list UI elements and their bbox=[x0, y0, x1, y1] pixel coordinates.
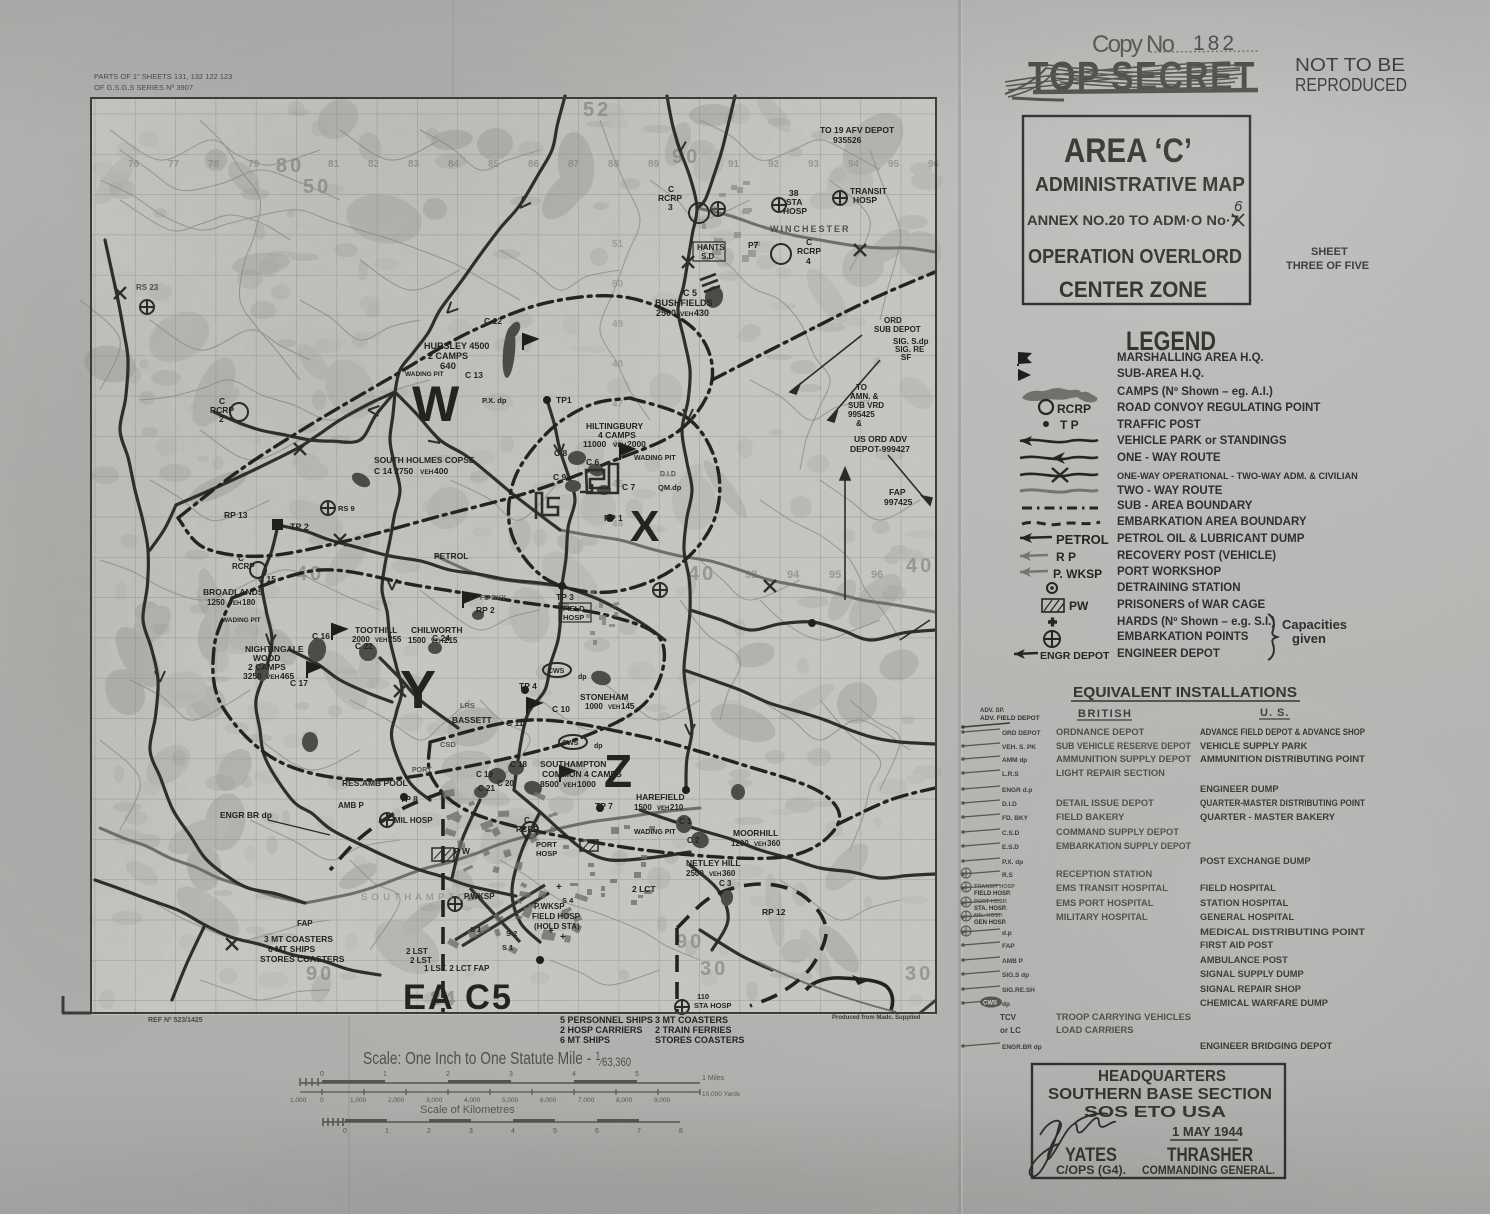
svg-text:10,000 Yards: 10,000 Yards bbox=[702, 1091, 741, 1098]
svg-text:VEH: VEH bbox=[754, 842, 766, 848]
svg-text:ENGR BR dp: ENGR BR dp bbox=[220, 810, 272, 820]
svg-text:30: 30 bbox=[905, 963, 933, 985]
svg-text:LRS: LRS bbox=[460, 701, 475, 710]
svg-text:VEH: VEH bbox=[563, 782, 577, 789]
svg-text:ROAD CONVOY REGULATING POINT: ROAD CONVOY REGULATING POINT bbox=[1117, 402, 1320, 414]
svg-text:STORES COASTERS: STORES COASTERS bbox=[655, 1035, 744, 1045]
svg-text:1500: 1500 bbox=[634, 803, 652, 812]
svg-text:4: 4 bbox=[806, 256, 811, 266]
svg-text:SOUTHAMPTON: SOUTHAMPTON bbox=[361, 892, 481, 903]
svg-text:995425: 995425 bbox=[848, 410, 875, 419]
svg-text:RECOVERY POST (VEHICLE): RECOVERY POST (VEHICLE) bbox=[1117, 550, 1276, 562]
svg-text:S 1: S 1 bbox=[502, 943, 513, 952]
svg-text:NETLEY HILL: NETLEY HILL bbox=[686, 858, 741, 868]
svg-text:CWS: CWS bbox=[562, 740, 579, 747]
svg-text:C 19: C 19 bbox=[476, 770, 493, 779]
svg-text:8500: 8500 bbox=[540, 779, 559, 789]
svg-text:1 LST. 2 LCT FAP: 1 LST. 2 LCT FAP bbox=[424, 964, 490, 973]
svg-text:PRISONERS of WAR CAGE: PRISONERS of WAR CAGE bbox=[1117, 599, 1266, 611]
svg-text:HOSP: HOSP bbox=[536, 849, 557, 858]
svg-text:VEH: VEH bbox=[608, 705, 620, 711]
svg-text:C: C bbox=[524, 816, 530, 825]
svg-text:2 LCT: 2 LCT bbox=[632, 884, 656, 894]
svg-text:210: 210 bbox=[670, 803, 684, 812]
svg-text:94: 94 bbox=[848, 159, 860, 170]
svg-text:5,000: 5,000 bbox=[502, 1097, 519, 1104]
svg-text:3 MT COASTERS: 3 MT COASTERS bbox=[264, 934, 333, 944]
svg-text:40: 40 bbox=[688, 563, 716, 585]
svg-text:+: + bbox=[548, 926, 554, 937]
svg-text:1200: 1200 bbox=[731, 839, 749, 848]
svg-text:1,000: 1,000 bbox=[290, 1097, 307, 1104]
svg-text:4,000: 4,000 bbox=[464, 1097, 481, 1104]
svg-text:TP 8: TP 8 bbox=[400, 794, 418, 804]
svg-text:R P: R P bbox=[1056, 550, 1076, 564]
svg-text:TO: TO bbox=[856, 383, 867, 392]
svg-text:2500: 2500 bbox=[686, 869, 704, 878]
svg-text:5: 5 bbox=[635, 1071, 639, 1078]
svg-text:SF: SF bbox=[901, 353, 911, 362]
svg-text:Scale: One Inch to One Statut: Scale: One Inch to One Statute Mile - 1⁄… bbox=[363, 1048, 631, 1069]
svg-text:ADV. SP.: ADV. SP. bbox=[980, 708, 1005, 714]
svg-text:145: 145 bbox=[621, 702, 635, 711]
svg-text:VEH: VEH bbox=[657, 806, 669, 812]
svg-text:5: 5 bbox=[524, 834, 529, 843]
svg-text:360: 360 bbox=[722, 869, 736, 878]
svg-text:P7: P7 bbox=[748, 240, 759, 250]
svg-text:HOSP: HOSP bbox=[853, 195, 877, 205]
svg-text:P W: P W bbox=[454, 846, 471, 856]
svg-text:2 TRAIN FERRIES: 2 TRAIN FERRIES bbox=[655, 1025, 732, 1035]
svg-text:S 2: S 2 bbox=[506, 929, 517, 938]
svg-text:Capacities: Capacities bbox=[1282, 617, 1347, 632]
svg-text:(HOLD STA): (HOLD STA) bbox=[534, 922, 580, 931]
svg-text:2,000: 2,000 bbox=[388, 1097, 405, 1104]
svg-text:TP 4: TP 4 bbox=[519, 681, 537, 691]
svg-text:2 HOSP CARRIERS: 2 HOSP CARRIERS bbox=[560, 1025, 642, 1035]
svg-text:30: 30 bbox=[700, 958, 728, 980]
svg-text:ONE - WAY ROUTE: ONE - WAY ROUTE bbox=[1117, 452, 1221, 464]
svg-text:5 PERSONNEL SHIPS: 5 PERSONNEL SHIPS bbox=[560, 1015, 653, 1025]
svg-text:PORT: PORT bbox=[536, 840, 557, 849]
svg-text:VEH: VEH bbox=[680, 311, 694, 318]
svg-text:STA HOSP: STA HOSP bbox=[694, 1001, 732, 1010]
svg-text:HOSP: HOSP bbox=[563, 613, 584, 622]
svg-text:WADING PIT: WADING PIT bbox=[634, 829, 676, 836]
svg-text:P.WKSP: P.WKSP bbox=[464, 892, 495, 901]
svg-text:AMN. &: AMN. & bbox=[850, 392, 879, 401]
svg-text:90: 90 bbox=[676, 931, 704, 953]
svg-text:HAREFIELD: HAREFIELD bbox=[636, 792, 685, 802]
svg-text:SUB - AREA BOUNDARY: SUB - AREA BOUNDARY bbox=[1117, 500, 1253, 512]
svg-text:FIELD: FIELD bbox=[563, 604, 585, 613]
svg-text:CWS: CWS bbox=[548, 668, 565, 675]
svg-text:1 Miles: 1 Miles bbox=[702, 1075, 725, 1082]
svg-text:Z: Z bbox=[604, 745, 632, 797]
svg-text:6 MT SHIPS: 6 MT SHIPS bbox=[268, 944, 316, 954]
svg-text:3,000: 3,000 bbox=[426, 1097, 443, 1104]
svg-text:TRAFFIC POST: TRAFFIC POST bbox=[1117, 419, 1201, 431]
svg-text:RCRP: RCRP bbox=[797, 246, 821, 256]
svg-text:Produced from Madc. Supplied: Produced from Madc. Supplied bbox=[832, 1015, 921, 1021]
svg-text:SUB VRD: SUB VRD bbox=[848, 401, 884, 410]
svg-text:0: 0 bbox=[320, 1071, 324, 1078]
svg-text:S 1: S 1 bbox=[470, 925, 481, 934]
svg-text:RP 12: RP 12 bbox=[762, 907, 786, 917]
svg-text:1: 1 bbox=[383, 1071, 387, 1078]
svg-text:RES.AMB POOL: RES.AMB POOL bbox=[342, 778, 408, 788]
svg-text:6 MT SHIPS: 6 MT SHIPS bbox=[560, 1035, 610, 1045]
svg-text:VEH: VEH bbox=[709, 872, 721, 878]
svg-text:RCRP: RCRP bbox=[516, 825, 539, 834]
svg-text:1,000: 1,000 bbox=[350, 1097, 367, 1104]
svg-text:US ORD ADV: US ORD ADV bbox=[854, 434, 907, 444]
svg-text:CSD: CSD bbox=[440, 740, 456, 749]
svg-text:C 11: C 11 bbox=[506, 718, 524, 728]
svg-text:C 5: C 5 bbox=[683, 288, 697, 298]
svg-text:DEPOT-999427: DEPOT-999427 bbox=[850, 444, 910, 454]
svg-text:90: 90 bbox=[306, 963, 334, 985]
svg-text:C 21: C 21 bbox=[478, 784, 495, 793]
svg-text:dp: dp bbox=[594, 743, 603, 750]
svg-text:SUB DEPOT: SUB DEPOT bbox=[874, 325, 921, 334]
svg-text:96: 96 bbox=[871, 569, 883, 581]
svg-text:WINCHESTER: WINCHESTER bbox=[770, 224, 851, 234]
svg-text:PETROL OIL & LUBRICANT DUM: PETROL OIL & LUBRICANT DUMP bbox=[1117, 533, 1305, 545]
svg-text:Y: Y bbox=[400, 660, 436, 720]
svg-text:FIELD HOSP: FIELD HOSP bbox=[532, 912, 581, 921]
svg-text:EMBARKATION AREA BOUNDARY: EMBARKATION AREA BOUNDARY bbox=[1117, 516, 1307, 528]
svg-text:C 10: C 10 bbox=[552, 704, 570, 714]
svg-text:VEHICLE PARK or STANDINGS: VEHICLE PARK or STANDINGS bbox=[1117, 435, 1287, 447]
svg-text:CAMPS (Nº Shown – eg. A.I.): CAMPS (Nº Shown – eg. A.I.) bbox=[1117, 386, 1273, 398]
svg-text:S 4: S 4 bbox=[562, 896, 574, 905]
svg-text:C 18: C 18 bbox=[510, 760, 527, 769]
svg-text:C 2: C 2 bbox=[687, 836, 700, 845]
svg-text:PW: PW bbox=[1069, 599, 1089, 613]
svg-text:T P: T P bbox=[1060, 418, 1079, 432]
svg-text:0: 0 bbox=[320, 1097, 324, 1104]
svg-text:MOORHILL: MOORHILL bbox=[733, 828, 778, 838]
svg-text:MIL HOSP: MIL HOSP bbox=[394, 816, 433, 825]
svg-text:997425: 997425 bbox=[884, 497, 913, 507]
svg-text:STORES COASTERS: STORES COASTERS bbox=[260, 954, 345, 964]
svg-text:P.WKSP: P.WKSP bbox=[534, 902, 565, 911]
svg-text:P. WKSP: P. WKSP bbox=[1053, 567, 1102, 581]
svg-text:TP 7: TP 7 bbox=[595, 801, 613, 811]
svg-text:RCRP: RCRP bbox=[1057, 402, 1091, 416]
svg-text:3 MT COASTERS: 3 MT COASTERS bbox=[655, 1015, 728, 1025]
svg-text:110: 110 bbox=[697, 992, 709, 1001]
svg-text:PETROL: PETROL bbox=[1056, 532, 1109, 547]
svg-text:40: 40 bbox=[906, 555, 934, 577]
svg-text:AMB P: AMB P bbox=[338, 801, 364, 810]
svg-text:FAP: FAP bbox=[889, 487, 906, 497]
svg-text:94: 94 bbox=[787, 569, 800, 581]
svg-text:4: 4 bbox=[572, 1071, 576, 1078]
svg-text:STONEHAM: STONEHAM bbox=[580, 692, 629, 702]
svg-text:+: + bbox=[556, 882, 562, 893]
svg-text:FAP: FAP bbox=[297, 919, 313, 928]
svg-text:EA C5: EA C5 bbox=[403, 978, 513, 1017]
svg-text:360: 360 bbox=[767, 839, 781, 848]
svg-text:430: 430 bbox=[694, 308, 709, 318]
svg-text:D.I.D: D.I.D bbox=[660, 471, 676, 478]
svg-text:BASSETT: BASSETT bbox=[452, 715, 492, 725]
svg-text:PORT: PORT bbox=[412, 767, 432, 774]
svg-text:1000: 1000 bbox=[577, 779, 596, 789]
svg-text:1000: 1000 bbox=[585, 702, 603, 711]
svg-text:3: 3 bbox=[509, 1071, 513, 1078]
svg-text:+: + bbox=[560, 932, 566, 943]
svg-text:&: & bbox=[856, 419, 862, 428]
svg-text:SOUTHAMPTON: SOUTHAMPTON bbox=[540, 759, 606, 769]
svg-text:dp: dp bbox=[578, 674, 587, 681]
svg-text:95: 95 bbox=[829, 569, 841, 581]
svg-text:2 LST: 2 LST bbox=[406, 947, 428, 956]
svg-text:HARDS (Nº Shown – e.g. S.I.): HARDS (Nº Shown – e.g. S.I.) bbox=[1117, 616, 1275, 628]
svg-text:ADV. FIELD DEPOT: ADV. FIELD DEPOT bbox=[980, 715, 1040, 722]
svg-text:DETRAINING STATION: DETRAINING STATION bbox=[1117, 582, 1241, 594]
svg-text:C 20: C 20 bbox=[497, 779, 514, 788]
svg-text:QM.dp: QM.dp bbox=[658, 483, 682, 492]
svg-text:PORT WORKSHOP: PORT WORKSHOP bbox=[1117, 566, 1221, 578]
svg-text:C 3: C 3 bbox=[719, 879, 732, 888]
svg-text:2: 2 bbox=[446, 1071, 450, 1078]
svg-text:ONE-WAY OPERATIONAL - TWO-WAY: ONE-WAY OPERATIONAL - TWO-WAY ADM. & CIV… bbox=[1117, 471, 1358, 481]
svg-text:C 1: C 1 bbox=[679, 817, 692, 826]
svg-text:TWO - WAY ROUTE: TWO - WAY ROUTE bbox=[1117, 485, 1223, 497]
svg-text:ENGR DEPOT: ENGR DEPOT bbox=[1040, 650, 1110, 662]
svg-text:ORD: ORD bbox=[884, 316, 902, 325]
